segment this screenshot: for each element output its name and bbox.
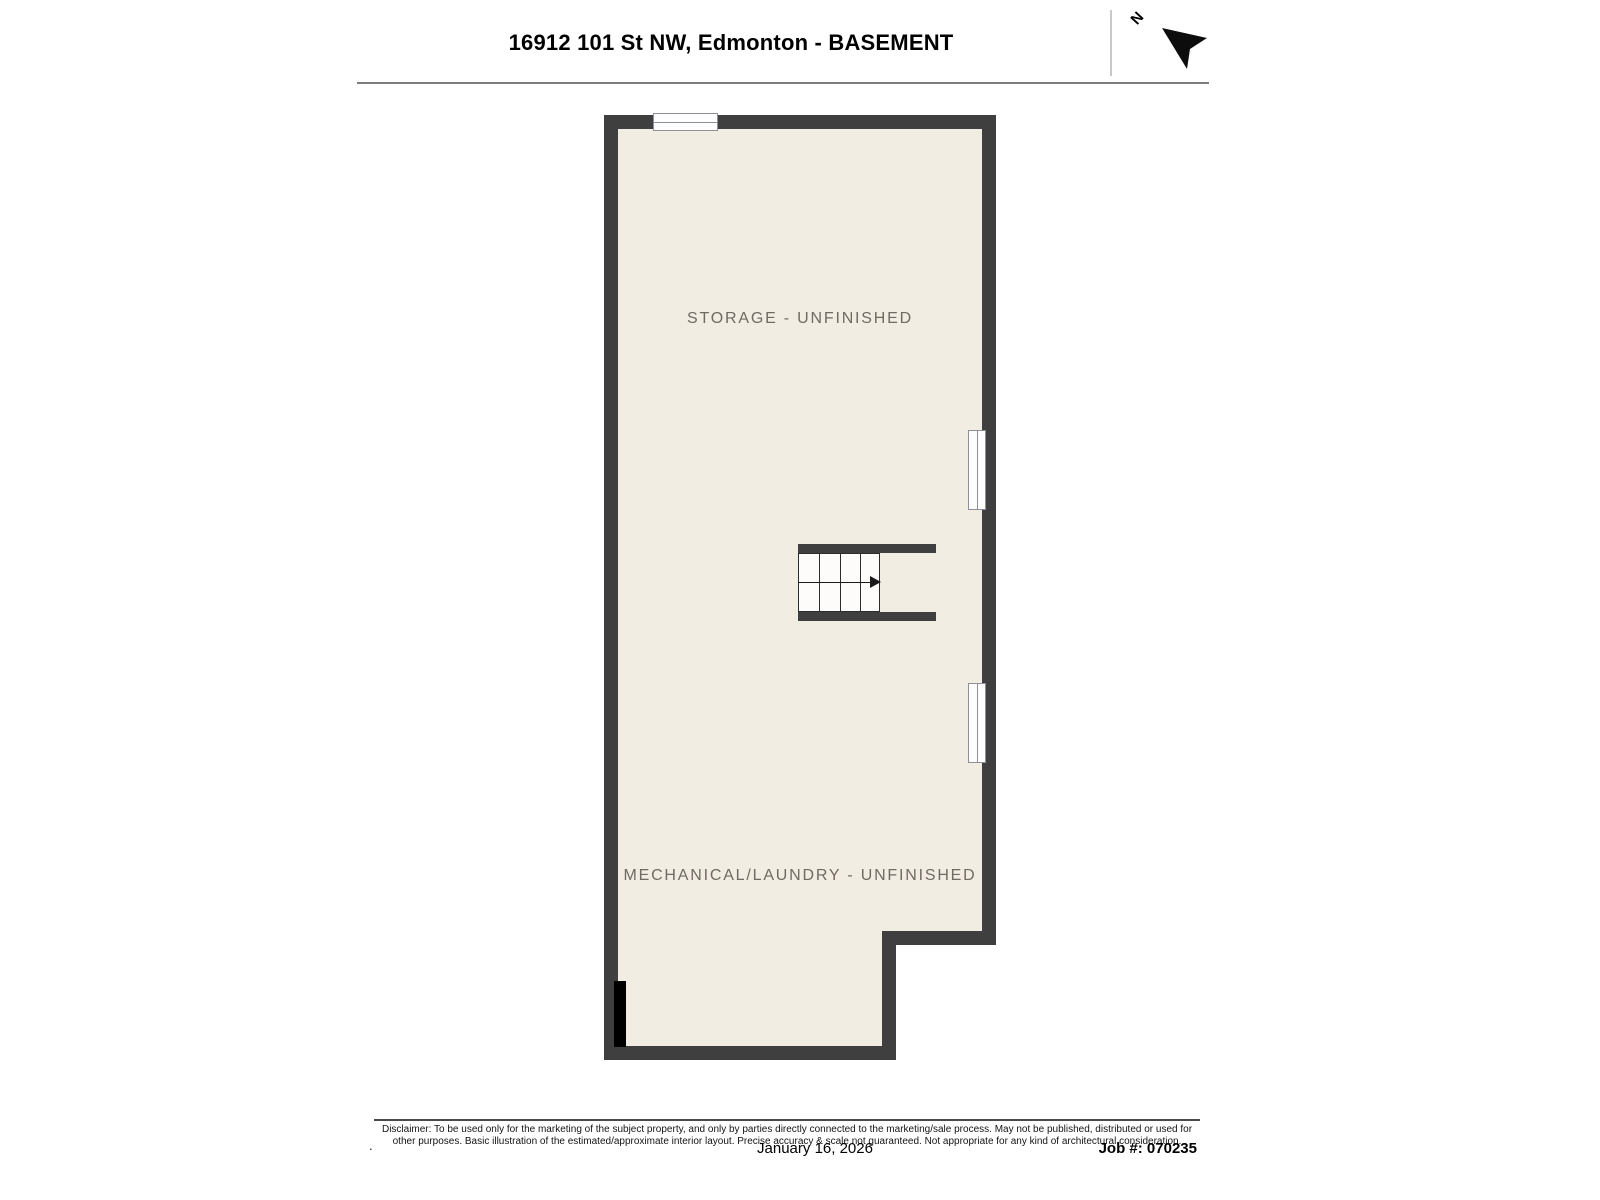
top-window-icon (653, 113, 718, 131)
disclaimer-line-1: Disclaimer: To be used only for the mark… (374, 1124, 1200, 1136)
footer-divider (374, 1119, 1200, 1121)
footer-period-mark: . (369, 1138, 373, 1153)
stair-direction-arrow-icon (870, 576, 881, 588)
footer-date: January 16, 2026 (600, 1140, 1030, 1157)
north-compass: N (1118, 4, 1218, 82)
window-pane (654, 122, 717, 123)
window-pane (977, 684, 978, 762)
window-pane (977, 431, 978, 509)
room-label-storage: STORAGE - UNFINISHED (618, 310, 982, 328)
door-opening (614, 981, 626, 1047)
stair-wall-upper (798, 544, 936, 553)
room-label-mechanical-laundry: MECHANICAL/LAUNDRY - UNFINISHED (618, 867, 982, 885)
stair-wall-lower (798, 612, 936, 621)
right-lower-window-icon (968, 683, 986, 763)
right-upper-window-icon (968, 430, 986, 510)
job-number: Job #: 070235 (997, 1140, 1197, 1157)
header-vertical-separator (1110, 10, 1112, 76)
floor-plan: STORAGE - UNFINISHED MECHANICAL/LAUNDRY … (604, 115, 996, 1060)
header-divider (357, 82, 1209, 84)
stair-direction-line (798, 582, 872, 583)
page-title: 16912 101 St NW, Edmonton - BASEMENT (357, 30, 1105, 56)
